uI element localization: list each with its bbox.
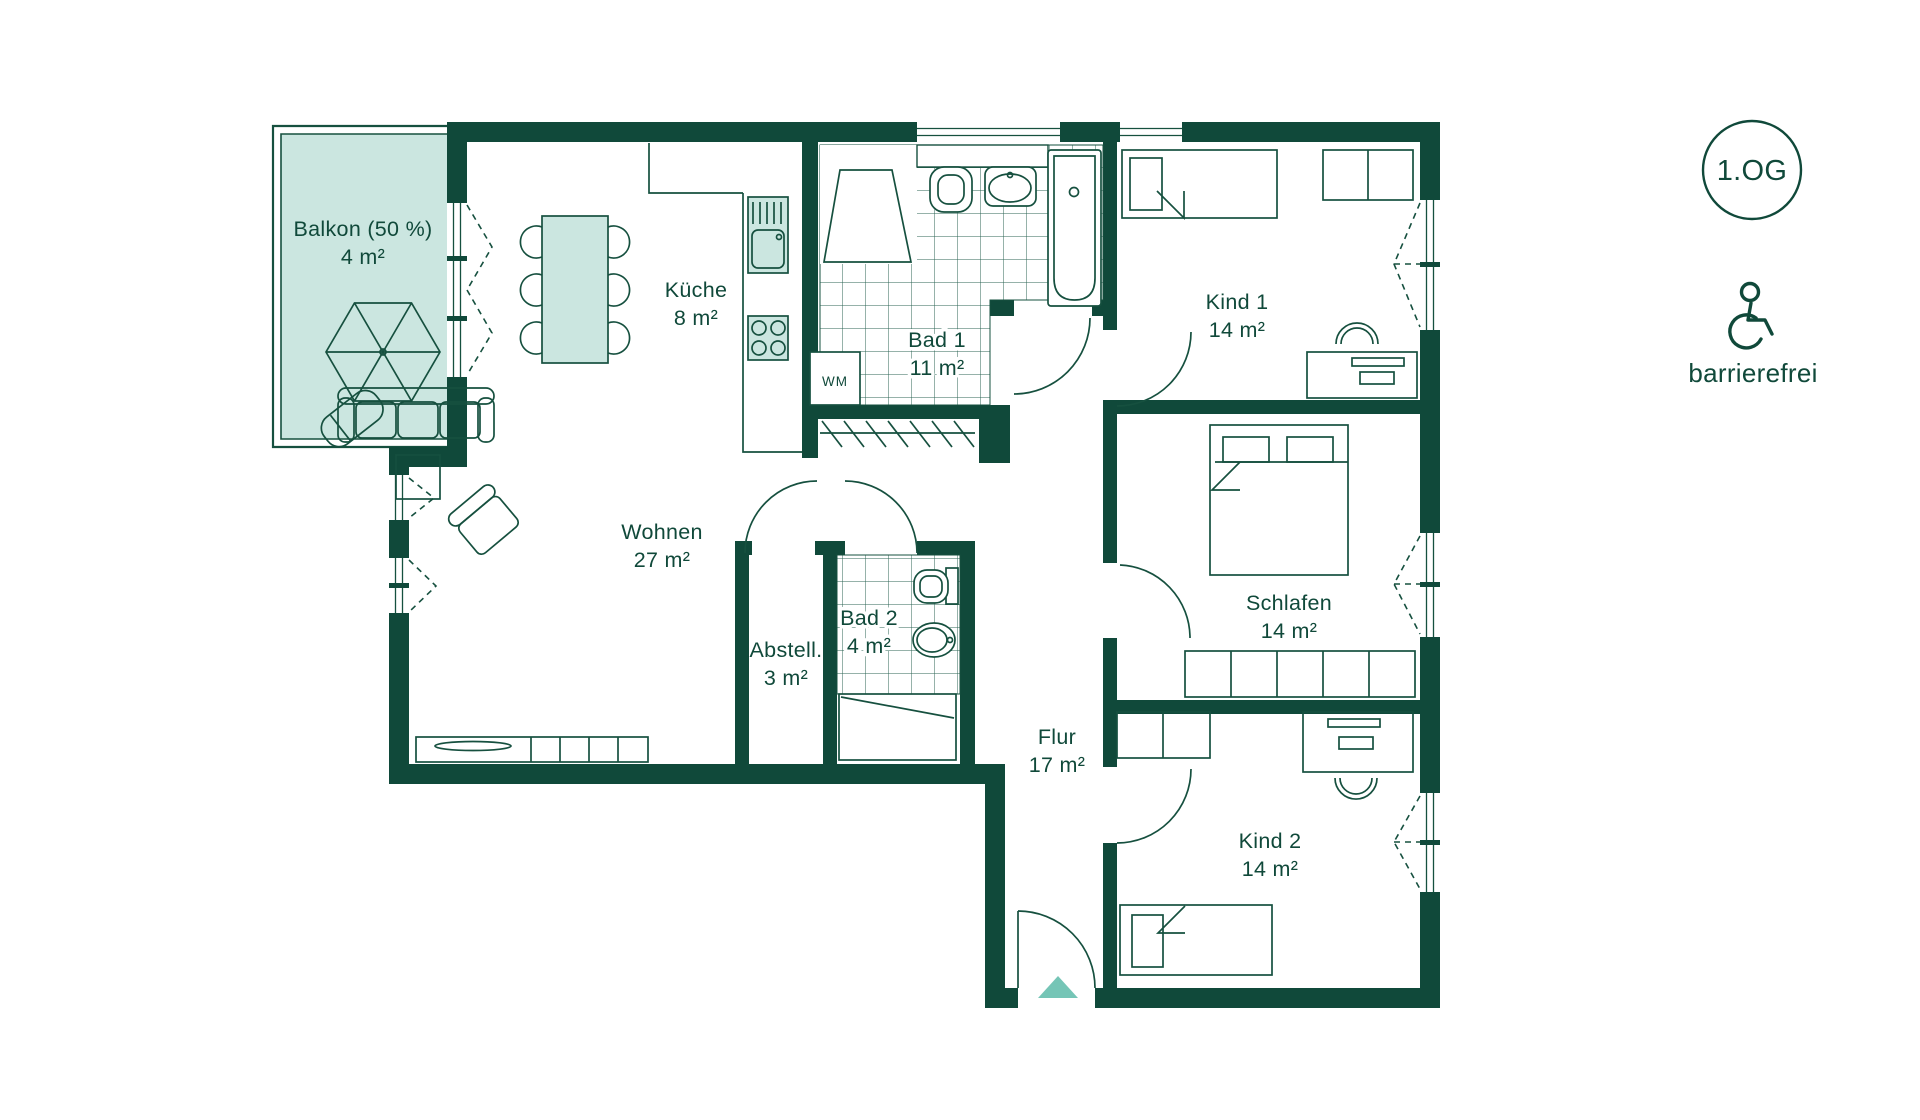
label-bad1-name: Bad 1 (908, 328, 966, 352)
bad2-door (845, 481, 917, 553)
kind1-door (1117, 332, 1191, 406)
desk-chair (1336, 323, 1378, 344)
kind1-furniture (1122, 150, 1417, 398)
washbasin-2 (913, 623, 955, 657)
label-kind1-area: 14 m² (1209, 318, 1265, 342)
label-kueche-name: Küche (665, 278, 727, 302)
dining-chair (520, 226, 542, 258)
label-abstell-area: 3 m² (764, 666, 808, 690)
label-wohnen-area: 27 m² (634, 548, 690, 572)
wohnen-window-2 (389, 558, 436, 613)
desk-chair (1335, 778, 1377, 799)
label-abstell-name: Abstell. (750, 638, 823, 662)
desk-kind2 (1303, 712, 1413, 799)
armchair (446, 482, 522, 558)
washing-machine: WM (810, 352, 860, 405)
installation-shaft (820, 421, 975, 447)
label-bad1-area: 11 m² (910, 356, 965, 380)
label-balkon-name: Balkon (50 %) (294, 217, 433, 241)
label-bad2-name: Bad 2 (840, 606, 898, 630)
wardrobe-kind1 (1323, 150, 1413, 200)
kind1-window (1394, 200, 1440, 330)
dining-chair (520, 322, 542, 354)
tv-lowboard (416, 737, 648, 762)
label-wohnen-name: Wohnen (621, 520, 703, 544)
stove (748, 316, 788, 360)
washing-machine-label: WM (822, 374, 848, 389)
balcony-door-window (447, 203, 492, 377)
label-flur-name: Flur (1038, 725, 1076, 749)
dining-set (520, 216, 629, 363)
schlafen-furniture (1185, 425, 1415, 697)
bathtub (1048, 150, 1101, 306)
toilet (930, 167, 972, 212)
label-kind2-name: Kind 2 (1239, 829, 1302, 853)
toilet-2 (914, 568, 958, 604)
entrance-arrow (1038, 976, 1078, 998)
label-schlafen-area: 14 m² (1261, 619, 1317, 643)
label-flur-area: 17 m² (1029, 753, 1085, 777)
floor-badge: 1.OG (1703, 121, 1801, 219)
label-kueche-area: 8 m² (674, 306, 718, 330)
bed-kind2 (1120, 905, 1272, 975)
dining-chair (608, 274, 630, 306)
bad1-window (917, 122, 1060, 142)
label-bad2-area: 4 m² (847, 634, 891, 658)
kind2-window (1394, 793, 1440, 892)
kind1-top-window (1120, 122, 1182, 142)
washbasin (985, 167, 1036, 206)
shower-2 (839, 694, 956, 760)
wheelchair-icon (1730, 284, 1772, 348)
dining-chair (608, 226, 630, 258)
tv (435, 742, 511, 751)
desk-kind1 (1307, 323, 1417, 398)
wardrobe-schlafen (1185, 651, 1415, 697)
floorplan-drawing: WM (0, 0, 1920, 1120)
abstell-door (745, 481, 817, 553)
label-kind1-name: Kind 1 (1206, 290, 1269, 314)
schlafen-window (1394, 533, 1440, 637)
double-bed (1210, 425, 1348, 575)
shower (820, 145, 917, 264)
label-schlafen-name: Schlafen (1246, 591, 1332, 615)
bad1-door (1014, 318, 1090, 394)
vanity-counter (917, 145, 1048, 167)
floor-badge-label: 1.OG (1717, 155, 1788, 187)
dresser-kind2 (1117, 712, 1210, 758)
schlafen-door (1120, 565, 1190, 638)
bed-kind1 (1122, 150, 1277, 218)
dining-table (542, 216, 608, 363)
dining-chair (520, 274, 542, 306)
accessibility-label: barrierefrei (1688, 358, 1817, 388)
kind2-door (1117, 769, 1191, 843)
dining-chair (608, 322, 630, 354)
floorplan-page: WM (0, 0, 1920, 1120)
label-balkon-area: 4 m² (341, 245, 385, 269)
kitchen-sink (748, 197, 788, 273)
entrance (1018, 911, 1095, 1008)
label-kind2-area: 14 m² (1242, 857, 1298, 881)
